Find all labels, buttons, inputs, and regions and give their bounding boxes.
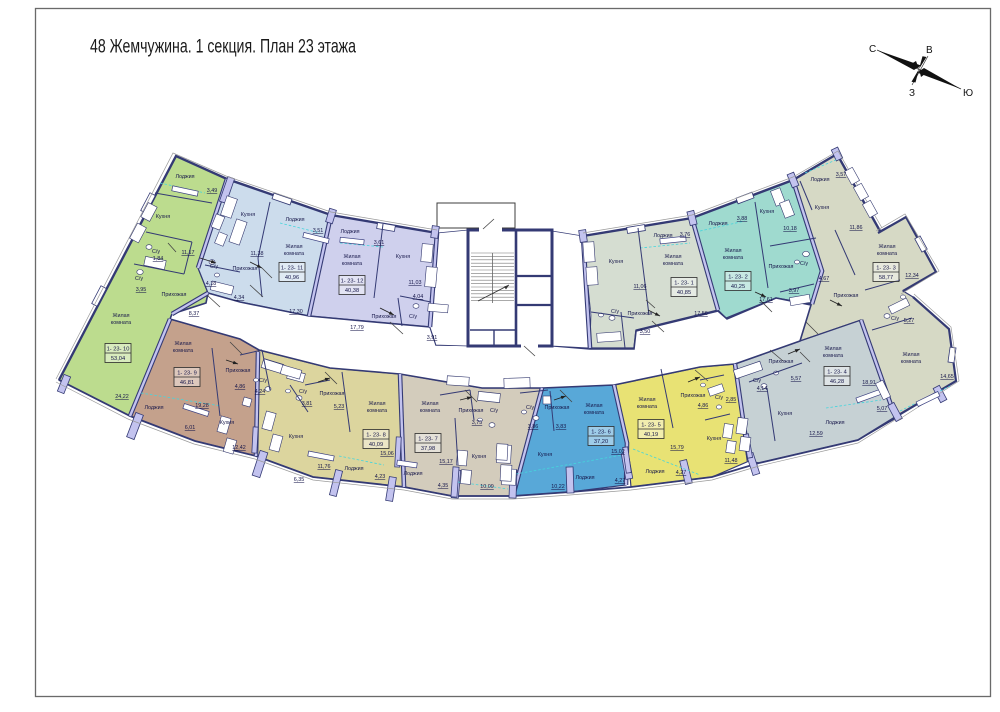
svg-text:40,85: 40,85 bbox=[677, 290, 691, 296]
svg-text:4,04: 4,04 bbox=[413, 294, 424, 300]
svg-text:1- 23- 4: 1- 23- 4 bbox=[827, 369, 847, 375]
svg-text:11,38: 11,38 bbox=[250, 251, 263, 257]
svg-text:1- 23- 3: 1- 23- 3 bbox=[876, 265, 896, 271]
svg-text:4,27: 4,27 bbox=[676, 470, 687, 476]
svg-text:1- 23- 7: 1- 23- 7 bbox=[418, 436, 438, 442]
svg-text:Кухня: Кухня bbox=[396, 254, 411, 260]
svg-text:4,24: 4,24 bbox=[255, 389, 266, 395]
svg-text:4,14: 4,14 bbox=[757, 386, 768, 392]
svg-text:15,79: 15,79 bbox=[670, 445, 684, 451]
svg-text:8,37: 8,37 bbox=[189, 311, 200, 317]
svg-text:Прихожая: Прихожая bbox=[372, 314, 397, 320]
svg-text:Прихожая: Прихожая bbox=[769, 359, 794, 365]
svg-text:Лоджия: Лоджия bbox=[653, 233, 672, 239]
svg-text:1- 23- 12: 1- 23- 12 bbox=[341, 278, 364, 284]
svg-text:Лоджия: Лоджия bbox=[344, 466, 363, 472]
svg-text:2,85: 2,85 bbox=[726, 397, 737, 403]
svg-text:4,18: 4,18 bbox=[206, 281, 217, 287]
svg-text:3,76: 3,76 bbox=[680, 232, 691, 238]
svg-text:58,77: 58,77 bbox=[879, 275, 893, 281]
svg-text:С/у: С/у bbox=[891, 316, 899, 322]
svg-text:11,17: 11,17 bbox=[181, 250, 194, 256]
svg-text:Жилаякомната: Жилаякомната bbox=[284, 244, 304, 257]
svg-text:С/у: С/у bbox=[409, 314, 417, 320]
svg-text:Жилаякомната: Жилаякомната bbox=[723, 248, 743, 261]
svg-text:Лоджия: Лоджия bbox=[175, 174, 194, 180]
svg-text:В: В bbox=[926, 45, 933, 56]
svg-text:Жилаякомната: Жилаякомната bbox=[173, 341, 193, 354]
svg-text:3,88: 3,88 bbox=[737, 216, 748, 222]
svg-text:Кухня: Кухня bbox=[472, 454, 487, 460]
svg-text:5,57: 5,57 bbox=[791, 376, 802, 382]
svg-text:5,27: 5,27 bbox=[904, 318, 915, 324]
svg-text:З: З bbox=[909, 88, 915, 99]
svg-text:Жилаякомната: Жилаякомната bbox=[584, 403, 604, 416]
svg-text:3,81: 3,81 bbox=[302, 401, 313, 407]
svg-text:Лоджия: Лоджия bbox=[285, 217, 304, 223]
svg-text:Кухня: Кухня bbox=[538, 452, 553, 458]
svg-text:Лоджия: Лоджия bbox=[144, 405, 163, 411]
svg-text:4,35: 4,35 bbox=[438, 483, 449, 489]
svg-text:Прихожая: Прихожая bbox=[834, 293, 859, 299]
svg-text:1- 23- 9: 1- 23- 9 bbox=[177, 370, 197, 376]
svg-text:С/у: С/у bbox=[490, 408, 498, 414]
svg-text:17,79: 17,79 bbox=[350, 325, 364, 331]
svg-text:Кухня: Кухня bbox=[609, 259, 624, 265]
svg-text:3,75: 3,75 bbox=[472, 420, 483, 426]
svg-text:Кухня: Кухня bbox=[707, 436, 722, 442]
svg-text:15,17: 15,17 bbox=[439, 459, 453, 465]
svg-text:48 Жемчужина. 1 секция. План: 48 Жемчужина. 1 секция. План 23 этажа bbox=[90, 37, 356, 58]
svg-text:3,86: 3,86 bbox=[528, 424, 539, 430]
svg-text:10,18: 10,18 bbox=[783, 226, 797, 232]
svg-text:40,96: 40,96 bbox=[285, 275, 299, 281]
svg-text:Прихожая: Прихожая bbox=[162, 292, 187, 298]
svg-text:Лоджия: Лоджия bbox=[810, 177, 829, 183]
svg-text:С/у: С/у bbox=[210, 264, 218, 270]
svg-text:1- 23- 2: 1- 23- 2 bbox=[728, 274, 748, 280]
svg-text:40,19: 40,19 bbox=[644, 432, 658, 438]
svg-text:Лоджия: Лоджия bbox=[708, 221, 727, 227]
svg-text:4,27: 4,27 bbox=[615, 478, 626, 484]
svg-text:Жилаякомната: Жилаякомната bbox=[367, 401, 387, 414]
svg-text:19,28: 19,28 bbox=[195, 403, 209, 409]
svg-text:1- 23- 5: 1- 23- 5 bbox=[641, 422, 661, 428]
svg-text:С/у: С/у bbox=[135, 276, 143, 282]
svg-text:Кухня: Кухня bbox=[220, 420, 235, 426]
svg-text:6,35: 6,35 bbox=[294, 477, 305, 483]
svg-text:3,97: 3,97 bbox=[789, 288, 800, 294]
svg-text:1- 23- 1: 1- 23- 1 bbox=[674, 280, 694, 286]
svg-text:5,23: 5,23 bbox=[334, 404, 345, 410]
svg-text:Прихожая: Прихожая bbox=[226, 368, 251, 374]
svg-text:37,20: 37,20 bbox=[594, 439, 608, 445]
svg-text:С/у: С/у bbox=[152, 249, 160, 255]
svg-text:15,02: 15,02 bbox=[611, 449, 625, 455]
svg-text:Прихожая: Прихожая bbox=[233, 266, 258, 272]
svg-text:24,22: 24,22 bbox=[115, 394, 129, 400]
svg-text:Жилаякомната: Жилаякомната bbox=[823, 346, 843, 359]
svg-text:4,86: 4,86 bbox=[698, 403, 709, 409]
svg-text:Лоджия: Лоджия bbox=[825, 420, 844, 426]
svg-text:4,67: 4,67 bbox=[819, 276, 830, 282]
svg-text:3,91: 3,91 bbox=[427, 335, 438, 341]
svg-text:1- 23- 6: 1- 23- 6 bbox=[591, 429, 611, 435]
svg-text:3,49: 3,49 bbox=[207, 188, 218, 194]
svg-text:Жилаякомната: Жилаякомната bbox=[342, 254, 362, 267]
svg-text:40,25: 40,25 bbox=[731, 284, 745, 290]
svg-text:С/у: С/у bbox=[715, 395, 723, 401]
svg-text:Кухня: Кухня bbox=[760, 209, 775, 215]
svg-text:Кухня: Кухня bbox=[241, 212, 256, 218]
svg-text:Лоджия: Лоджия bbox=[340, 229, 359, 235]
svg-text:5,07: 5,07 bbox=[877, 406, 888, 412]
svg-text:12,34: 12,34 bbox=[905, 273, 919, 279]
svg-text:11,76: 11,76 bbox=[317, 464, 330, 470]
svg-text:1- 23- 10: 1- 23- 10 bbox=[107, 346, 130, 352]
svg-text:Прихожая: Прихожая bbox=[681, 393, 706, 399]
svg-text:Лоджия: Лоджия bbox=[645, 469, 664, 475]
svg-text:14,65: 14,65 bbox=[940, 374, 954, 380]
svg-text:С/у: С/у bbox=[611, 309, 619, 315]
svg-text:Ю: Ю bbox=[963, 88, 973, 99]
svg-text:10,22: 10,22 bbox=[551, 484, 565, 490]
svg-text:11,06: 11,06 bbox=[633, 284, 646, 290]
svg-text:15,06: 15,06 bbox=[380, 451, 394, 457]
svg-text:17,30: 17,30 bbox=[289, 309, 303, 315]
svg-text:С/у: С/у bbox=[800, 261, 808, 267]
svg-text:Жилаякомната: Жилаякомната bbox=[663, 254, 683, 267]
svg-text:С/у: С/у bbox=[259, 378, 267, 384]
svg-text:11,03: 11,03 bbox=[408, 280, 421, 286]
svg-text:4,34: 4,34 bbox=[234, 295, 245, 301]
svg-text:Жилаякомната: Жилаякомната bbox=[420, 401, 440, 414]
svg-text:53,04: 53,04 bbox=[111, 356, 125, 362]
svg-text:Жилаякомната: Жилаякомната bbox=[111, 313, 131, 326]
svg-text:Прихожая: Прихожая bbox=[628, 311, 653, 317]
svg-text:6,01: 6,01 bbox=[185, 425, 196, 431]
svg-text:Кухня: Кухня bbox=[778, 411, 793, 417]
svg-text:С/у: С/у bbox=[753, 378, 761, 384]
svg-text:С/у: С/у bbox=[526, 405, 534, 411]
svg-text:Прихожая: Прихожая bbox=[769, 264, 794, 270]
svg-text:1- 23- 11: 1- 23- 11 bbox=[281, 265, 303, 271]
svg-text:4,23: 4,23 bbox=[375, 474, 386, 480]
svg-text:3,61: 3,61 bbox=[374, 240, 385, 246]
svg-text:С: С bbox=[869, 44, 876, 55]
svg-text:3,57: 3,57 bbox=[836, 172, 847, 178]
svg-text:Жилаякомната: Жилаякомната bbox=[901, 352, 921, 365]
svg-text:Кухня: Кухня bbox=[815, 205, 830, 211]
svg-text:46,81: 46,81 bbox=[180, 380, 194, 386]
svg-text:Лоджия: Лоджия bbox=[403, 471, 422, 477]
svg-text:Прихожая: Прихожая bbox=[320, 391, 345, 397]
svg-text:17,56: 17,56 bbox=[694, 311, 708, 317]
svg-text:4,86: 4,86 bbox=[235, 384, 246, 390]
svg-text:1- 23- 8: 1- 23- 8 bbox=[366, 432, 386, 438]
svg-text:10,09: 10,09 bbox=[480, 484, 494, 490]
svg-text:12,42: 12,42 bbox=[232, 445, 246, 451]
svg-text:11,48: 11,48 bbox=[724, 458, 737, 464]
svg-text:3,50: 3,50 bbox=[640, 329, 651, 335]
svg-text:12,59: 12,59 bbox=[809, 431, 823, 437]
svg-text:37,98: 37,98 bbox=[421, 446, 435, 452]
svg-text:18,91: 18,91 bbox=[862, 380, 876, 386]
svg-text:Прихожая: Прихожая bbox=[459, 408, 484, 414]
svg-text:46,28: 46,28 bbox=[830, 379, 844, 385]
svg-text:40,38: 40,38 bbox=[345, 288, 359, 294]
svg-text:40,09: 40,09 bbox=[369, 442, 383, 448]
svg-text:11,86: 11,86 bbox=[849, 225, 862, 231]
svg-text:С/у: С/у bbox=[299, 389, 307, 395]
svg-text:Лоджия: Лоджия bbox=[575, 475, 594, 481]
svg-text:3,51: 3,51 bbox=[313, 228, 324, 234]
svg-text:3,83: 3,83 bbox=[556, 424, 567, 430]
svg-text:Прихожая: Прихожая bbox=[545, 405, 570, 411]
svg-text:3,95: 3,95 bbox=[136, 287, 147, 293]
svg-text:1,84: 1,84 bbox=[153, 256, 164, 262]
svg-text:Кухня: Кухня bbox=[289, 434, 304, 440]
svg-text:Кухня: Кухня bbox=[156, 214, 171, 220]
svg-text:Жилаякомната: Жилаякомната bbox=[637, 397, 657, 410]
svg-text:Жилаякомната: Жилаякомната bbox=[877, 244, 897, 257]
svg-text:17,61: 17,61 bbox=[759, 297, 773, 303]
